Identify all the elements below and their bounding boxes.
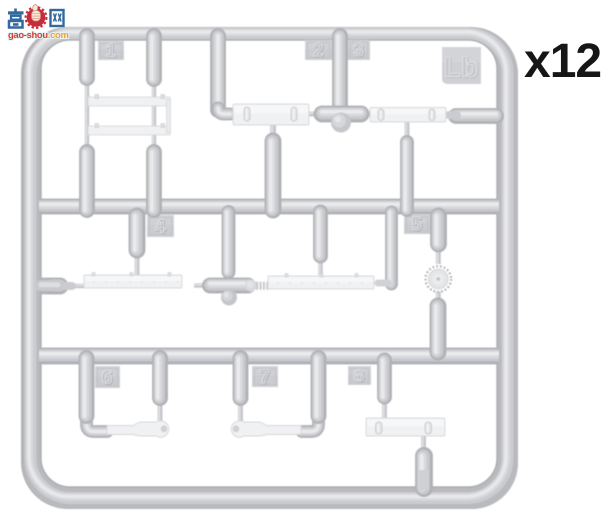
svg-text:6: 6 [102, 367, 113, 388]
svg-text:gao-shou.com: gao-shou.com [8, 29, 68, 40]
svg-text:8: 8 [354, 366, 363, 385]
svg-text:1: 1 [106, 41, 116, 61]
svg-text:x12: x12 [524, 35, 601, 88]
svg-text:2: 2 [313, 40, 323, 60]
svg-text:3: 3 [354, 40, 364, 60]
svg-text:Lb: Lb [444, 52, 478, 83]
svg-text:7: 7 [259, 367, 270, 388]
svg-text:4: 4 [155, 216, 166, 237]
svg-text:5: 5 [412, 214, 422, 234]
